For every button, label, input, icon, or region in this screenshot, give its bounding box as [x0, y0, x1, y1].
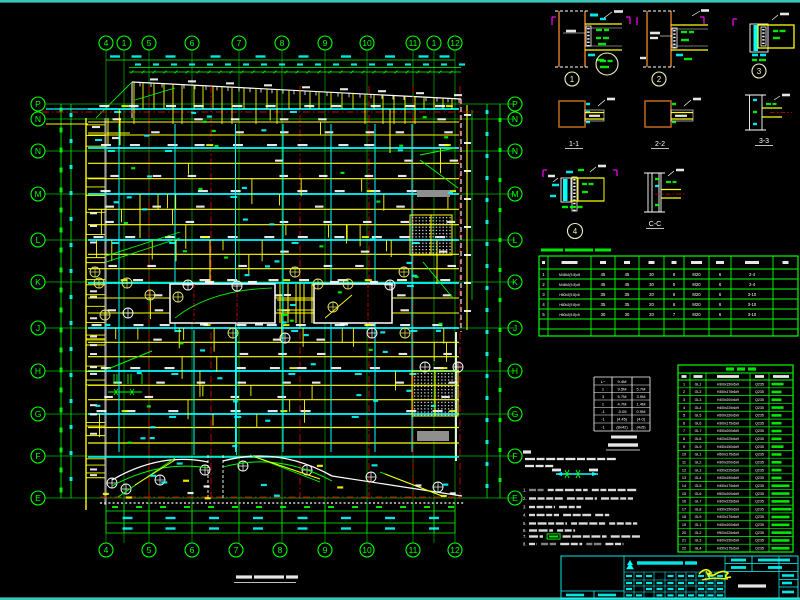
- svg-text:GL8: GL8: [695, 507, 702, 511]
- svg-text:E: E: [512, 493, 518, 503]
- svg-text:GL7: GL7: [695, 429, 702, 433]
- svg-text:20: 20: [649, 312, 654, 317]
- svg-text:Q235: Q235: [755, 421, 764, 425]
- svg-text:30: 30: [649, 282, 654, 287]
- svg-text:13: 13: [682, 476, 686, 480]
- svg-text:GL1: GL1: [695, 382, 702, 386]
- svg-text:16: 16: [682, 500, 686, 504]
- svg-text:E: E: [35, 493, 41, 503]
- svg-text:N: N: [512, 146, 518, 156]
- svg-text:(4.0): (4.0): [637, 417, 646, 422]
- svg-text:2: 2: [657, 75, 662, 84]
- svg-text:11: 11: [682, 460, 686, 464]
- svg-text:H: H: [35, 366, 41, 376]
- svg-text:H300x200x6x9: H300x200x6x9: [717, 460, 739, 464]
- svg-text:3-10: 3-10: [748, 312, 757, 317]
- svg-text:8.: 8.: [523, 542, 527, 547]
- svg-text:Q235: Q235: [755, 492, 764, 496]
- svg-text:L~: L~: [601, 379, 606, 384]
- svg-text:M20: M20: [692, 302, 701, 307]
- svg-text:Q235: Q235: [755, 468, 764, 472]
- svg-text:5.7M: 5.7M: [618, 394, 627, 399]
- svg-text:21: 21: [682, 539, 686, 543]
- svg-text:GL4: GL4: [695, 406, 702, 410]
- svg-text:H350x175x6x9: H350x175x6x9: [717, 390, 739, 394]
- svg-text:18: 18: [682, 515, 686, 519]
- svg-text:H300x150x6x9: H300x150x6x9: [717, 382, 739, 386]
- svg-text:GL2: GL2: [695, 460, 702, 464]
- svg-text:4.: 4.: [523, 513, 527, 518]
- svg-text:35: 35: [625, 292, 630, 297]
- svg-text:8: 8: [683, 437, 685, 441]
- svg-text:6.: 6.: [523, 528, 527, 533]
- svg-text:11: 11: [409, 38, 418, 48]
- svg-text:GL1: GL1: [695, 453, 702, 457]
- svg-text:Q235: Q235: [755, 500, 764, 504]
- svg-text:1: 1: [432, 38, 437, 48]
- svg-text:Q235: Q235: [755, 476, 764, 480]
- svg-text:H450x175x6x9: H450x175x6x9: [717, 484, 739, 488]
- svg-text:3.9M: 3.9M: [637, 394, 646, 399]
- svg-text:GL2: GL2: [695, 531, 702, 535]
- svg-text:M46b2(9.8)x8: M46b2(9.8)x8: [559, 283, 580, 287]
- svg-text:G: G: [35, 409, 42, 419]
- svg-text:2-2: 2-2: [655, 141, 665, 148]
- svg-text:10: 10: [362, 38, 372, 48]
- svg-text:4: 4: [573, 227, 578, 236]
- svg-text:2-4: 2-4: [749, 272, 756, 277]
- svg-text:GL9: GL9: [695, 445, 702, 449]
- svg-text:3.: 3.: [523, 505, 527, 510]
- svg-text:15: 15: [682, 492, 686, 496]
- svg-text:GL3: GL3: [695, 398, 702, 402]
- svg-text:9: 9: [683, 445, 685, 449]
- svg-text:19: 19: [682, 523, 686, 527]
- svg-text:Q235: Q235: [755, 382, 764, 386]
- svg-text:10: 10: [682, 453, 686, 457]
- svg-text:GL4: GL4: [695, 546, 702, 550]
- svg-text:GL4: GL4: [695, 476, 702, 480]
- svg-text:K: K: [35, 277, 41, 287]
- svg-text:10: 10: [362, 545, 372, 555]
- svg-text:2.: 2.: [523, 496, 527, 501]
- svg-text:20: 20: [682, 531, 686, 535]
- svg-text:Q235: Q235: [755, 523, 764, 527]
- svg-text:H500x200x6x9: H500x200x6x9: [717, 492, 739, 496]
- svg-text:H300x225x6x9: H300x225x6x9: [717, 500, 739, 504]
- svg-text:30: 30: [625, 312, 630, 317]
- svg-text:M20: M20: [692, 272, 701, 277]
- svg-text:4: 4: [104, 545, 109, 555]
- svg-text:6: 6: [190, 545, 195, 555]
- svg-text:2-4: 2-4: [749, 282, 756, 287]
- svg-text:Q235: Q235: [755, 453, 764, 457]
- svg-text:P: P: [512, 99, 518, 109]
- svg-text:GL6: GL6: [695, 492, 702, 496]
- svg-text:(4x5): (4x5): [636, 425, 646, 430]
- svg-text:GL9: GL9: [695, 515, 702, 519]
- svg-text:1: 1: [122, 38, 127, 48]
- svg-text:17: 17: [682, 507, 686, 511]
- svg-text:H350x225x6x9: H350x225x6x9: [717, 468, 739, 472]
- svg-text:Q235: Q235: [755, 437, 764, 441]
- svg-text:H500x150x6x9: H500x150x6x9: [717, 414, 739, 418]
- svg-text:Q235: Q235: [755, 546, 764, 550]
- svg-text:GL7: GL7: [695, 500, 702, 504]
- svg-text:J: J: [513, 323, 517, 333]
- svg-text:H400x200x6x9: H400x200x6x9: [717, 398, 739, 402]
- svg-text:M20: M20: [692, 312, 701, 317]
- svg-text:1-1: 1-1: [569, 141, 579, 148]
- svg-text:H60b2(9.8)x5: H60b2(9.8)x5: [559, 313, 580, 317]
- svg-text:GL3: GL3: [695, 468, 702, 472]
- svg-text:(4.45): (4.45): [617, 417, 628, 422]
- svg-text:1.4M: 1.4M: [637, 402, 646, 407]
- svg-text:3-3: 3-3: [759, 138, 769, 145]
- svg-text:L: L: [36, 235, 41, 245]
- svg-text:20: 20: [649, 302, 654, 307]
- svg-text:H350x175x6x9: H350x175x6x9: [717, 546, 739, 550]
- svg-text:H350x200x6x9: H350x200x6x9: [717, 429, 739, 433]
- svg-text:H60b2(9.8)x6: H60b2(9.8)x6: [559, 293, 580, 297]
- svg-text:8: 8: [280, 38, 285, 48]
- svg-text:8: 8: [278, 545, 283, 555]
- svg-text:H60b2(9.8)x6: H60b2(9.8)x6: [559, 303, 580, 307]
- svg-text:7.: 7.: [523, 534, 527, 539]
- svg-text:F: F: [35, 451, 40, 461]
- svg-text:M: M: [34, 189, 41, 199]
- svg-text:GL3: GL3: [695, 539, 702, 543]
- svg-text:GL5: GL5: [695, 414, 702, 418]
- svg-text:11: 11: [409, 545, 418, 555]
- svg-text:K: K: [512, 277, 518, 287]
- svg-text:C-C: C-C: [649, 221, 661, 228]
- svg-text:4.7M: 4.7M: [618, 402, 627, 407]
- svg-text:Q235: Q235: [755, 429, 764, 433]
- svg-text:GL2: GL2: [695, 390, 702, 394]
- svg-text:20: 20: [649, 292, 654, 297]
- svg-text:H300x175x6x9: H300x175x6x9: [717, 421, 739, 425]
- svg-text:GL6: GL6: [695, 421, 702, 425]
- svg-text:45: 45: [625, 272, 630, 277]
- svg-text:12: 12: [450, 545, 460, 555]
- svg-text:H350x150x6x9: H350x150x6x9: [717, 507, 739, 511]
- svg-text:45: 45: [601, 282, 606, 287]
- svg-text:H450x150x6x9: H450x150x6x9: [717, 445, 739, 449]
- svg-text:35: 35: [625, 302, 630, 307]
- svg-text:12: 12: [682, 468, 686, 472]
- svg-text:F: F: [512, 451, 517, 461]
- svg-text:GL5: GL5: [695, 484, 702, 488]
- svg-text:1.: 1.: [523, 488, 527, 493]
- svg-text:G: G: [512, 409, 519, 419]
- svg-text:H500x225x6x9: H500x225x6x9: [717, 531, 739, 535]
- svg-text:1: 1: [570, 75, 575, 84]
- svg-text:M: M: [511, 189, 518, 199]
- svg-text:7: 7: [237, 38, 242, 48]
- svg-text:N: N: [35, 114, 41, 124]
- svg-text:Q235: Q235: [755, 515, 764, 519]
- svg-text:H450x200x6x9: H450x200x6x9: [717, 523, 739, 527]
- svg-text:-0.05: -0.05: [617, 409, 627, 414]
- svg-text:4: 4: [683, 406, 685, 410]
- svg-text:5: 5: [683, 414, 685, 418]
- svg-text:9.4M: 9.4M: [618, 379, 627, 384]
- svg-text:2: 2: [683, 390, 685, 394]
- svg-text:1: 1: [683, 382, 685, 386]
- svg-text:22: 22: [682, 546, 686, 550]
- svg-text:0.9M: 0.9M: [637, 409, 646, 414]
- svg-text:J: J: [36, 323, 40, 333]
- svg-text:H300x150x6x9: H300x150x6x9: [717, 539, 739, 543]
- svg-text:N: N: [512, 114, 518, 124]
- svg-text:45: 45: [601, 272, 606, 277]
- svg-text:M46b2(9.8)x8: M46b2(9.8)x8: [559, 273, 580, 277]
- svg-text:GL8: GL8: [695, 437, 702, 441]
- svg-text:9.5M: 9.5M: [618, 387, 627, 392]
- svg-text:3: 3: [757, 67, 762, 76]
- svg-text:Q235: Q235: [755, 507, 764, 511]
- svg-text:H: H: [512, 366, 518, 376]
- svg-text:3: 3: [683, 398, 685, 402]
- svg-text:30: 30: [649, 272, 654, 277]
- svg-text:N: N: [35, 146, 41, 156]
- svg-text:12: 12: [450, 38, 460, 48]
- svg-text:3-10: 3-10: [748, 302, 757, 307]
- svg-text:(8x42): (8x42): [616, 425, 628, 430]
- svg-text:5: 5: [147, 545, 152, 555]
- svg-text:35: 35: [601, 302, 606, 307]
- svg-text:5.7M: 5.7M: [637, 387, 646, 392]
- svg-text:4: 4: [104, 38, 109, 48]
- svg-text:Q235: Q235: [755, 460, 764, 464]
- svg-text:5.: 5.: [523, 521, 527, 526]
- svg-text:6: 6: [683, 421, 685, 425]
- svg-text:Q235: Q235: [755, 531, 764, 535]
- svg-text:M20: M20: [692, 282, 701, 287]
- svg-text:3-10: 3-10: [748, 292, 757, 297]
- svg-text:9: 9: [323, 38, 328, 48]
- svg-text:7: 7: [234, 545, 239, 555]
- svg-text:9: 9: [323, 545, 328, 555]
- svg-text:H400x175x6x9: H400x175x6x9: [717, 515, 739, 519]
- svg-text:Q235: Q235: [755, 406, 764, 410]
- svg-text:Q235: Q235: [755, 484, 764, 488]
- svg-text:M20: M20: [692, 292, 701, 297]
- svg-text:H450x225x6x9: H450x225x6x9: [717, 406, 739, 410]
- svg-text:7: 7: [683, 429, 685, 433]
- svg-text:P: P: [35, 99, 41, 109]
- svg-text:45: 45: [625, 282, 630, 287]
- svg-text:14: 14: [682, 484, 686, 488]
- svg-text:Q235: Q235: [755, 445, 764, 449]
- svg-text:GL1: GL1: [695, 523, 702, 527]
- svg-text:6: 6: [190, 38, 195, 48]
- svg-text:Q235: Q235: [755, 398, 764, 402]
- svg-text:Q235: Q235: [755, 390, 764, 394]
- svg-text:30: 30: [601, 312, 606, 317]
- svg-text:35: 35: [601, 292, 606, 297]
- svg-text:Q235: Q235: [755, 539, 764, 543]
- svg-text:H400x150x6x9: H400x150x6x9: [717, 476, 739, 480]
- svg-text:L: L: [513, 235, 518, 245]
- svg-text:H500x175x6x9: H500x175x6x9: [717, 453, 739, 457]
- svg-text:H400x225x6x9: H400x225x6x9: [717, 437, 739, 441]
- svg-text:5: 5: [147, 38, 152, 48]
- svg-text:Q235: Q235: [755, 414, 764, 418]
